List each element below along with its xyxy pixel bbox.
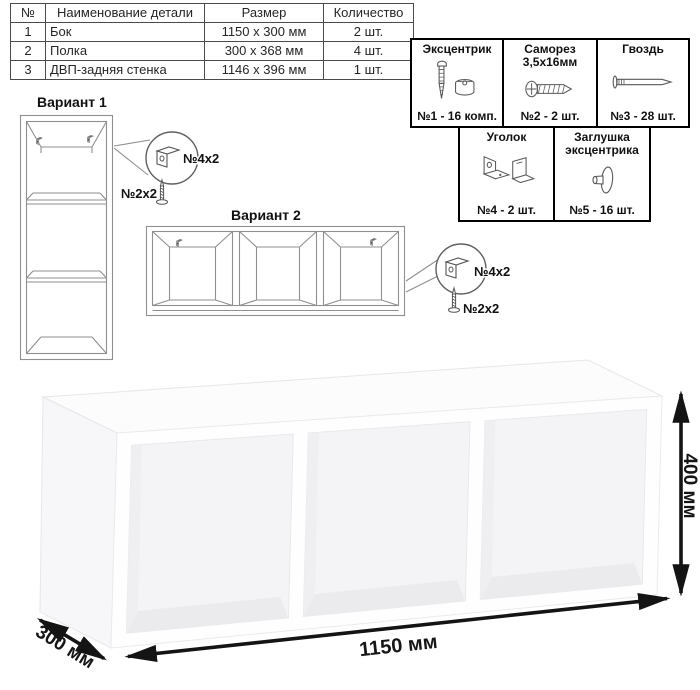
cam-bolt-icon	[428, 56, 486, 109]
cam-cap-icon	[582, 157, 622, 203]
part-num-cell: 1	[11, 23, 46, 42]
variant1-callout: №4х2 №2х2	[114, 132, 219, 204]
hardware-title: Гвоздь	[622, 43, 664, 56]
height-dimension-label: 400 мм	[679, 453, 700, 518]
variant1-title: Вариант 1	[37, 94, 107, 110]
hardware-count: №2 - 2 шт.	[521, 109, 580, 123]
variant2-screw-label: №2х2	[463, 301, 499, 316]
screw-icon	[521, 69, 579, 109]
part-num-cell: 2	[11, 42, 46, 61]
hardware-count: №4 - 2 шт.	[477, 203, 536, 217]
variant2-title: Вариант 2	[231, 207, 301, 223]
part-num-cell: 3	[11, 61, 46, 80]
table-row: 1 Бок 1150 x 300 мм 2 шт.	[11, 23, 414, 42]
variant2-bracket-label: №4х2	[474, 264, 510, 279]
part-name-cell: ДВП-задняя стенка	[46, 61, 205, 80]
hardware-box-row1: Эксцентрик №1 - 16 комп. Саморез 3,5х16м…	[410, 38, 690, 128]
variant1-bracket-label: №4х2	[183, 151, 219, 166]
hardware-cell-cap: Заглушка эксцентрика №5 - 16 шт.	[553, 126, 651, 222]
shelf-left-face	[40, 397, 117, 648]
shelf-3d	[40, 360, 662, 648]
hardware-title: Заглушка эксцентрика	[555, 131, 649, 157]
hardware-title: Эксцентрик	[423, 43, 492, 56]
hardware-box-row2: Уголок №4 - 2 шт. Заглушка эксцентрика №…	[458, 126, 651, 222]
hardware-title: Саморез 3,5х16мм	[504, 43, 596, 69]
hardware-title: Уголок	[487, 131, 527, 144]
part-qty-cell: 2 шт.	[324, 23, 414, 42]
hardware-count: №5 - 16 шт.	[569, 203, 635, 217]
variant2-drawing: Вариант 2	[147, 207, 405, 316]
header-size: Размер	[205, 4, 324, 23]
part-qty-cell: 1 шт.	[324, 61, 414, 80]
bracket-mark-icon	[370, 238, 377, 246]
hardware-cell-screw: Саморез 3,5х16мм №2 - 2 шт.	[502, 38, 598, 128]
variant1-drawing: Вариант 1	[21, 94, 113, 360]
nail-icon	[610, 56, 676, 109]
bracket-mark-icon	[176, 239, 183, 247]
variant2-callout: №4х2 №2х2	[406, 244, 510, 316]
corner-bracket-icon	[476, 144, 538, 203]
parts-table-header-row: № Наименование детали Размер Количество	[11, 4, 414, 23]
hardware-cell-bracket: Уголок №4 - 2 шт.	[458, 126, 555, 222]
header-qty: Количество	[324, 4, 414, 23]
hardware-count: №3 - 28 шт.	[610, 109, 676, 123]
hardware-cell-eccentric: Эксцентрик №1 - 16 комп.	[410, 38, 504, 128]
header-name: Наименование детали	[46, 4, 205, 23]
table-row: 3 ДВП-задняя стенка 1146 x 396 мм 1 шт.	[11, 61, 414, 80]
parts-table: № Наименование детали Размер Количество …	[10, 3, 414, 80]
part-size-cell: 1146 x 396 мм	[205, 61, 324, 80]
header-num: №	[11, 4, 46, 23]
table-row: 2 Полка 300 x 368 мм 4 шт.	[11, 42, 414, 61]
part-qty-cell: 4 шт.	[324, 42, 414, 61]
hardware-count: №1 - 16 комп.	[417, 109, 497, 123]
part-size-cell: 1150 x 300 мм	[205, 23, 324, 42]
part-size-cell: 300 x 368 мм	[205, 42, 324, 61]
hardware-cell-nail: Гвоздь №3 - 28 шт.	[596, 38, 690, 128]
part-name-cell: Бок	[46, 23, 205, 42]
bracket-mark-icon	[87, 135, 94, 143]
width-dimension-label: 1150 мм	[358, 631, 438, 661]
variant1-screw-label: №2х2	[121, 186, 157, 201]
part-name-cell: Полка	[46, 42, 205, 61]
